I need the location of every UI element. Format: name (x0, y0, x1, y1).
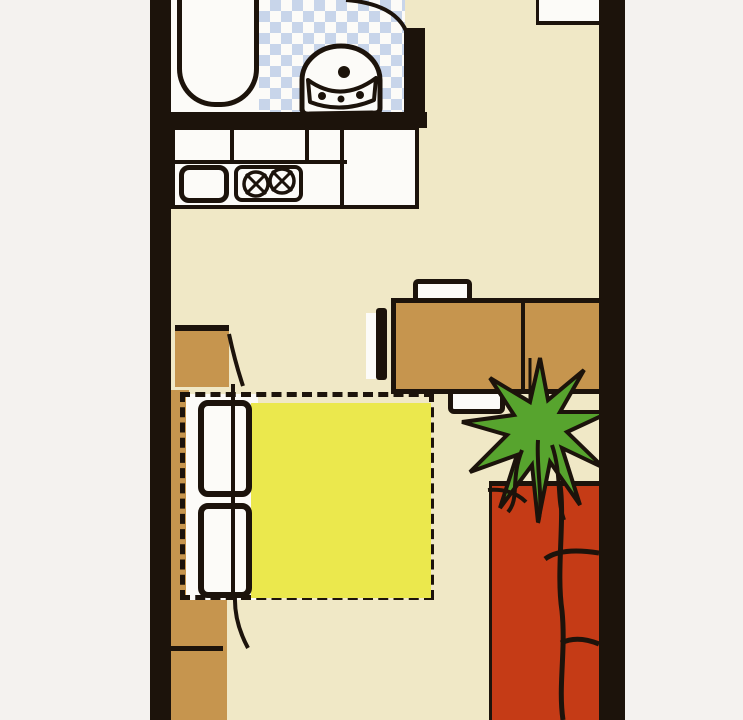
low-cabinet (170, 598, 227, 720)
yellow-rug (251, 403, 431, 598)
basin-drain (338, 66, 350, 78)
left-wall (150, 0, 171, 720)
fold-line-end (230, 594, 254, 652)
entry-cabinet (536, 0, 599, 25)
chair-left-back (376, 308, 387, 380)
sofa-bed-cushion (198, 503, 252, 598)
counter-section-tick (305, 126, 309, 164)
wardrobe-open-door (225, 328, 249, 390)
wardrobe (175, 325, 229, 387)
low-cabinet-divider (170, 646, 223, 651)
bathroom-door-swing-arc (338, 0, 412, 38)
sofa-bed-fold-line (231, 384, 235, 599)
stove-two-burners (233, 163, 305, 205)
bathroom-partition-wall (404, 28, 425, 114)
kitchen-sink (179, 165, 229, 203)
scanned-page: { "meta": { "type": "floor-plan", "style… (0, 0, 743, 720)
bathtub (177, 0, 259, 107)
counter-tall-divider (340, 126, 344, 209)
potted-plant (452, 340, 612, 525)
washbasin (294, 42, 388, 118)
floor-plan (0, 0, 743, 720)
right-wall (599, 0, 625, 720)
sofa-bed-cushion (198, 400, 252, 497)
counter-section-tick (230, 126, 234, 164)
